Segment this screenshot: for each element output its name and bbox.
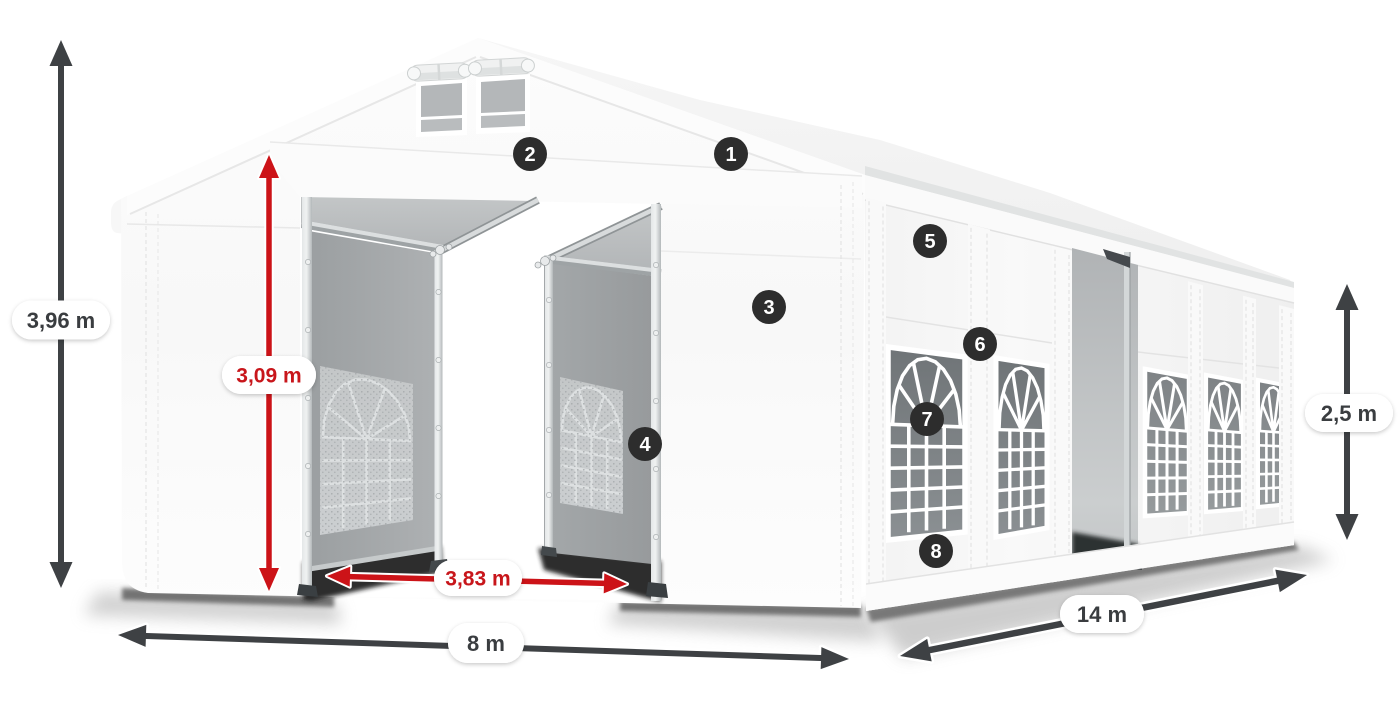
svg-text:2,5 m: 2,5 m (1321, 401, 1377, 426)
svg-text:5: 5 (924, 231, 935, 253)
svg-text:3,83 m: 3,83 m (445, 568, 510, 591)
svg-text:3,96 m: 3,96 m (27, 308, 96, 333)
svg-text:1: 1 (725, 144, 736, 166)
svg-text:4: 4 (639, 434, 651, 456)
svg-text:2: 2 (524, 144, 535, 166)
svg-text:14 m: 14 m (1077, 602, 1127, 627)
svg-text:3: 3 (763, 297, 774, 319)
svg-text:7: 7 (921, 409, 932, 431)
svg-text:8: 8 (930, 541, 941, 563)
svg-text:3,09 m: 3,09 m (236, 365, 301, 388)
svg-text:6: 6 (974, 334, 985, 356)
svg-text:8 m: 8 m (467, 631, 505, 656)
